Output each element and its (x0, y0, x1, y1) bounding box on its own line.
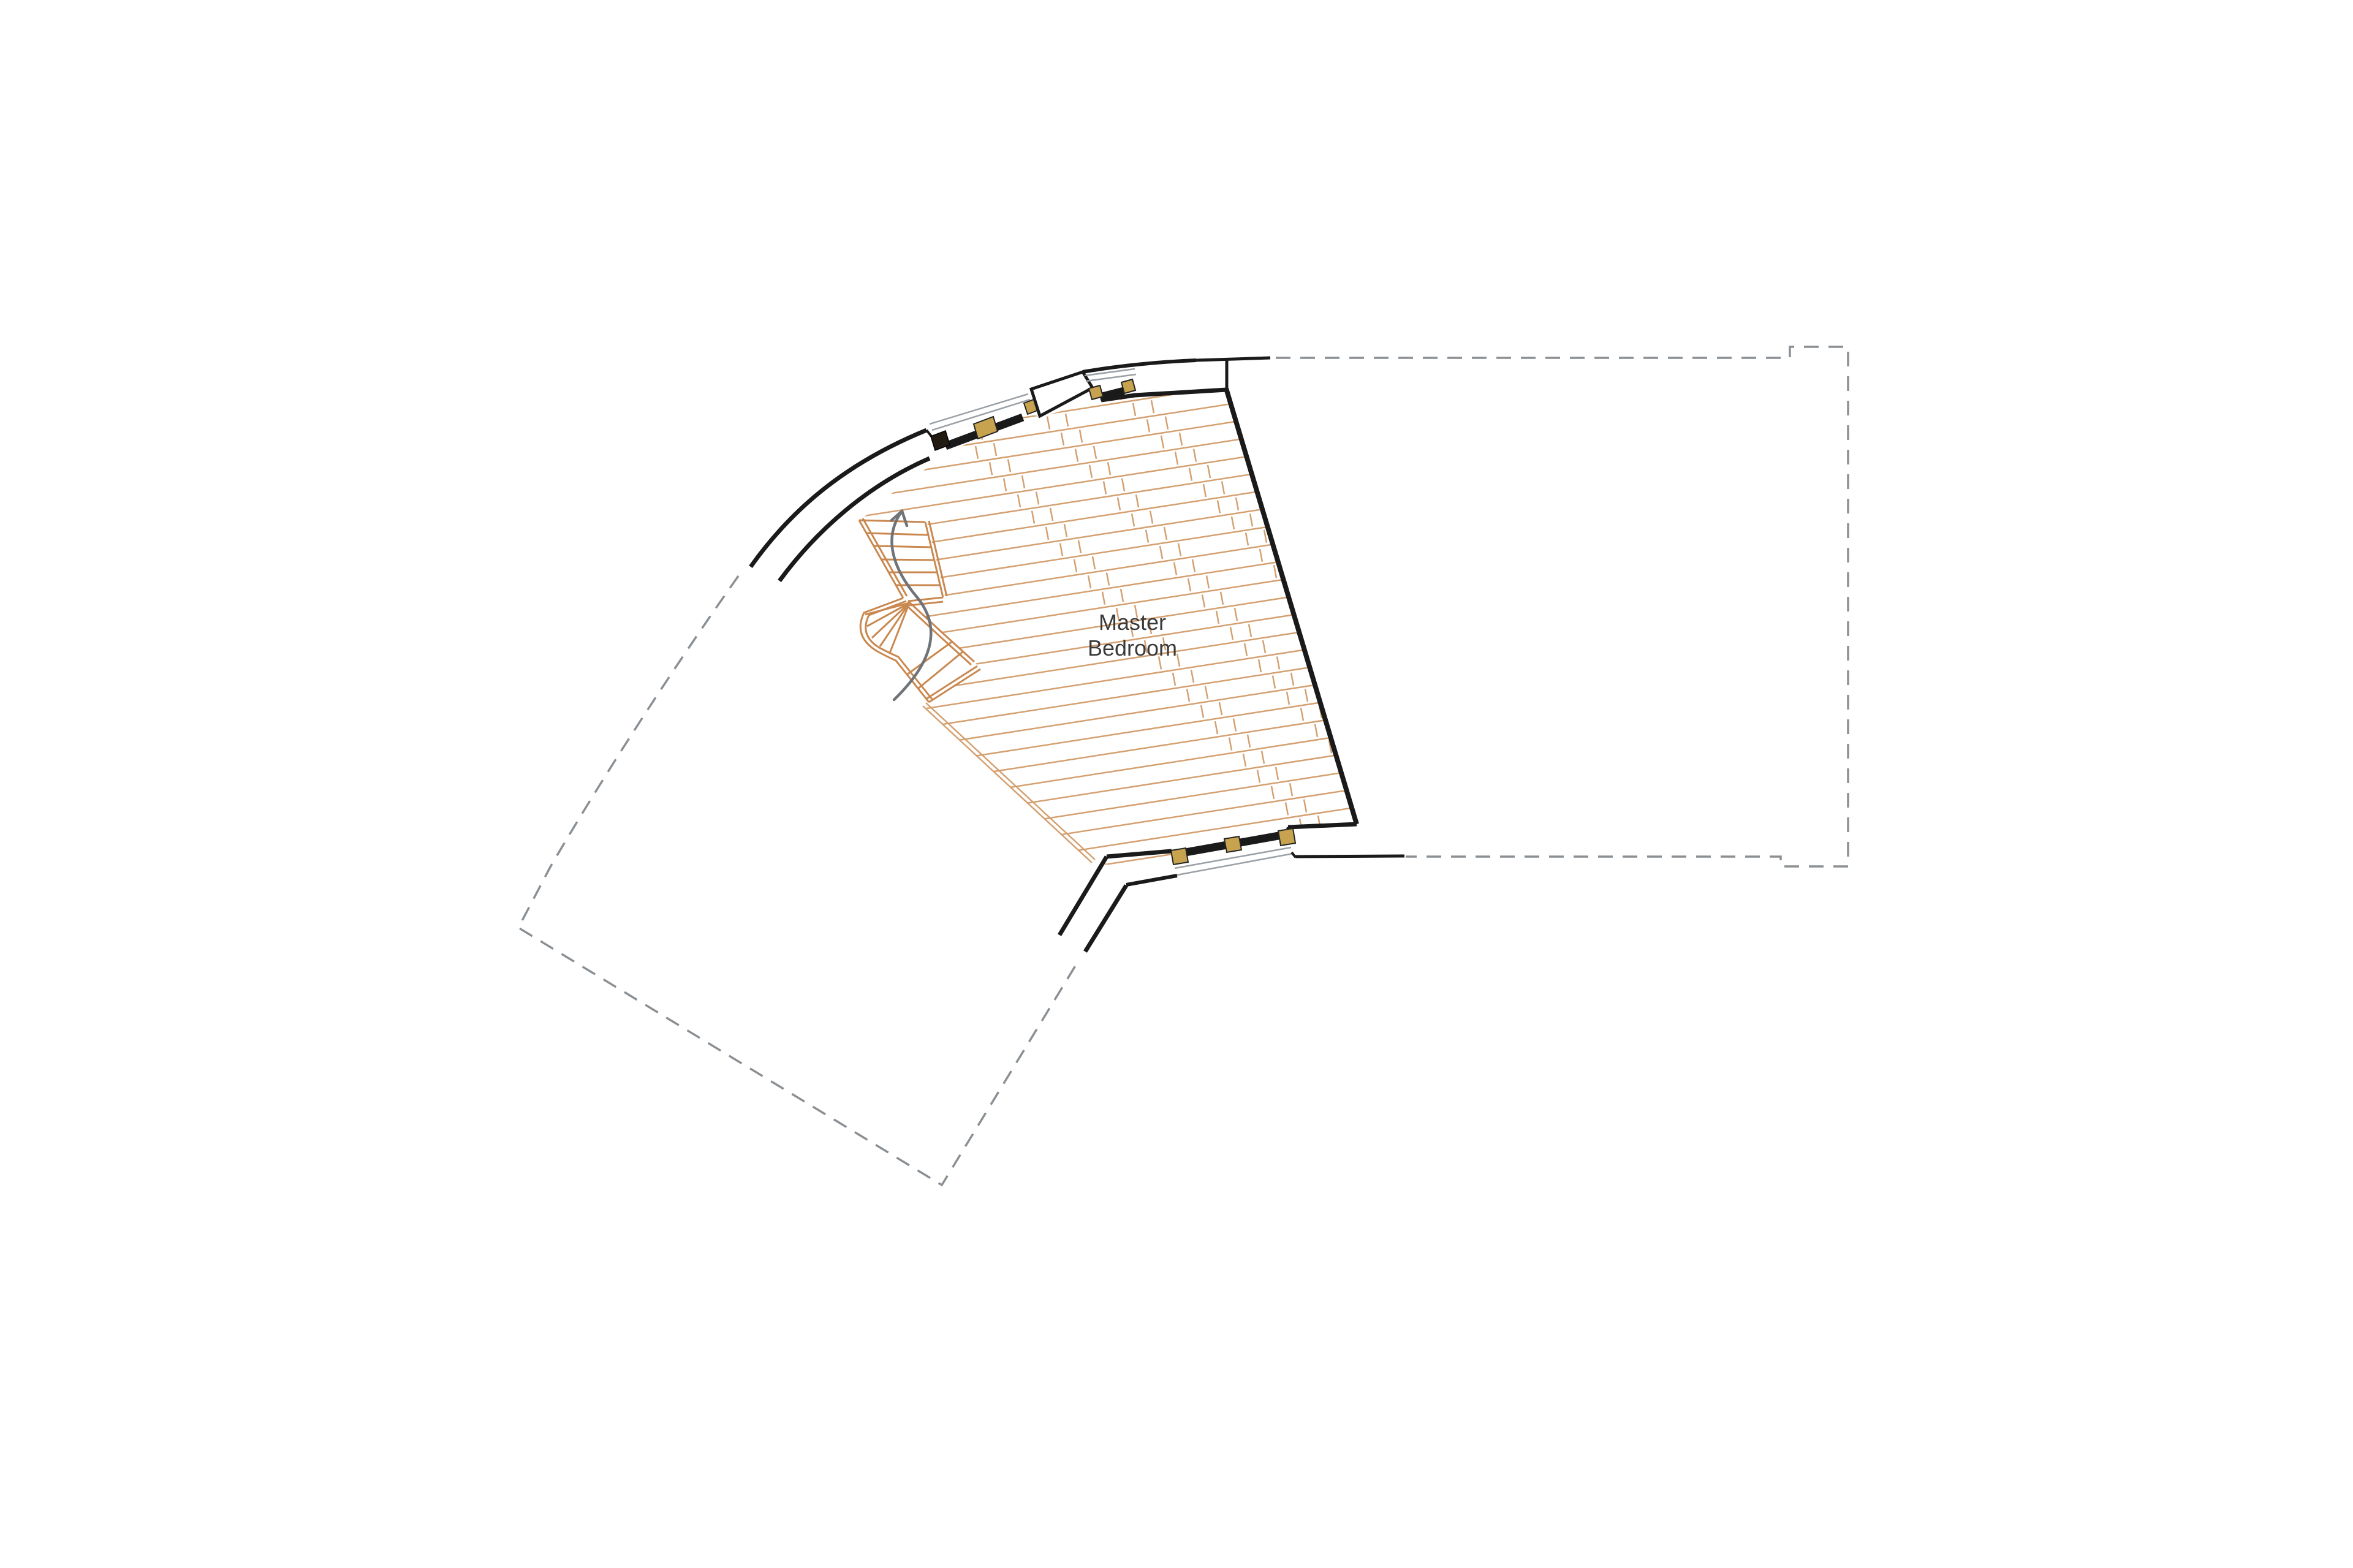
floor-plank-joint (1189, 468, 1192, 481)
floor-hatch-line (846, 692, 1385, 776)
floor-plank-joint (1419, 708, 1422, 721)
floor-plank-joint (990, 462, 992, 475)
floor-plank-joint (1219, 702, 1222, 715)
floor-plank-joint (1180, 433, 1182, 445)
roof-outline-right-dashed (1276, 347, 1848, 866)
floor-plank-joint (1074, 559, 1077, 572)
floor-plank-joint (1490, 789, 1492, 802)
floor-hatch-line (846, 490, 1385, 574)
floor-plank-joint (933, 397, 936, 410)
room-label-line2: Bedroom (1088, 635, 1177, 661)
floor-plank-joint (1216, 611, 1219, 624)
floor-plank-joint (1236, 498, 1238, 510)
floor-plank-joint (1178, 543, 1181, 556)
floor-hatch-line (846, 839, 1385, 923)
floor-plank-joint (1160, 546, 1162, 559)
floor-plank-joint (1387, 695, 1389, 708)
floor-plank-joint (1404, 802, 1406, 815)
floor-plank-joint (1194, 449, 1196, 462)
floor-plank-joint (1078, 540, 1081, 553)
floor-plank-joint (1133, 403, 1135, 416)
floor-hatch-line (846, 398, 1385, 482)
floor-plank-joint (1107, 573, 1109, 586)
floor-plank-joint (1064, 524, 1067, 537)
floor-plank-joint (1165, 417, 1168, 430)
floor-plank-joint (1232, 517, 1234, 529)
floor-plank-joint (1333, 721, 1336, 734)
floor-plank-joint (1161, 436, 1164, 449)
floor-plank-joint (1215, 721, 1218, 734)
floor-hatch-line (846, 527, 1385, 610)
floor-plank-joint (1230, 627, 1233, 640)
floor-hatch-line (846, 472, 1385, 555)
floor-plank-joint (1250, 513, 1252, 526)
floor-plank-joint (1201, 705, 1203, 718)
floor-plank-joint (1292, 562, 1295, 575)
window-mullion-block (1121, 379, 1135, 393)
floor-plank-joint (1104, 481, 1106, 494)
east-wall (1226, 388, 1357, 824)
floor-plank-joint (1036, 491, 1039, 504)
floor-plank-joint (1222, 481, 1224, 494)
floor-plank-joint (1192, 559, 1195, 572)
floor-plank-joint (1271, 786, 1274, 799)
floor-hatch-line (846, 766, 1385, 849)
floor-plank-joint (1188, 578, 1191, 591)
room-label: Master Bedroom (1088, 610, 1177, 661)
floor-plank-joint (1357, 773, 1360, 786)
floor-plank-joint (1429, 743, 1431, 756)
floor-plank-joint (1150, 511, 1153, 524)
floor-plank-joint (1088, 575, 1091, 588)
floor-plank-joint (1461, 757, 1464, 770)
floor-plank-joint (1447, 740, 1450, 753)
floor-plank-joint (1019, 384, 1021, 397)
floor-plank-joint (1320, 594, 1323, 607)
floor-plank-joint (1400, 821, 1402, 834)
floor-plank-joint (1147, 419, 1150, 432)
floor-plank-joint (1306, 578, 1309, 591)
floor-plank-joint (1089, 465, 1092, 478)
deck-outline-lower-left-dashed (518, 576, 1078, 1185)
floor-plank-joint (1305, 689, 1308, 702)
floor-plank-joint (1233, 718, 1236, 731)
window-mullion-block (1224, 836, 1241, 852)
floor-plank-joint (1177, 654, 1180, 667)
floor-plank-joint (1132, 513, 1134, 526)
floor-plank-joint (1257, 770, 1260, 782)
floor-plank-joint (1314, 835, 1316, 847)
floor-plank-joint (1343, 757, 1346, 770)
room-label-line1: Master (1099, 610, 1166, 635)
floor-hatch-line (846, 821, 1385, 904)
floor-plank-joint (1151, 400, 1154, 413)
floor-plank-joint (1260, 549, 1262, 562)
window-mullion-block (1089, 385, 1103, 400)
floor-plank-joint (1022, 475, 1025, 488)
floor-plank-joint (1066, 414, 1068, 426)
floor-plank-joint (1418, 819, 1420, 831)
floor-plank-joint (1302, 597, 1305, 610)
door-opening-jamb (1059, 857, 1107, 935)
floor-plank-joint (1004, 479, 1006, 491)
floor-plank-joint (1245, 643, 1247, 656)
floor-plank-joint (1246, 532, 1248, 545)
floor-plank-joint (1173, 673, 1175, 686)
floor-plank-joint (1332, 832, 1335, 845)
floor-plank-joint (1080, 430, 1082, 442)
door-opening-jamb (1085, 885, 1126, 952)
floor-plank-joint (1485, 808, 1488, 821)
floor-plank-joint (1229, 738, 1232, 751)
floor-plank-joint (976, 446, 978, 459)
floor-plank-joint (1316, 614, 1319, 627)
floor-plank-joint (1202, 594, 1205, 607)
floor-plank-joint (1504, 805, 1506, 818)
floor-plank-joint (1175, 452, 1178, 464)
floor-plank-joint (1476, 773, 1478, 786)
floor-plank-joint (1005, 368, 1007, 381)
floor-plank-joint (1091, 355, 1093, 368)
exterior-line-bottom-right (1295, 856, 1404, 857)
floor-plank-joint (1273, 676, 1275, 689)
floor-plank-joint (1290, 783, 1292, 796)
floor-plank-joint (1401, 711, 1403, 724)
floor-plank-joint (1471, 792, 1474, 805)
floor-plank-joint (1443, 759, 1446, 772)
floor-plank-joint (1415, 727, 1417, 740)
floor-plank-joint (994, 443, 996, 456)
floor-plank-joint (1094, 446, 1096, 459)
floor-hatch-line (846, 803, 1385, 886)
floor-plank-joint (952, 395, 954, 407)
floor-plank-joint (919, 381, 922, 394)
floor-plank-joint (1376, 770, 1378, 783)
floor-plank-joint (1218, 501, 1220, 513)
floor-plank-joint (1390, 786, 1392, 799)
wood-floor-hatch (846, 306, 1506, 923)
floor-plank-joint (1122, 479, 1124, 491)
floor-plank-joint (1243, 754, 1246, 767)
floor-plank-joint (1207, 575, 1209, 588)
floor-plank-joint (1344, 646, 1347, 659)
floor-plank-joint (1287, 692, 1289, 705)
floor-plank-joint (1061, 433, 1064, 445)
floor-plank-joint (1046, 527, 1048, 540)
floor-plank-joint (1191, 670, 1194, 683)
floor-plank-joint (1291, 673, 1294, 686)
floor-plank-joint (938, 378, 940, 391)
floor-plank-joint (1008, 460, 1010, 472)
floor-plank-joint (1301, 708, 1303, 721)
floor-plank-joint (1304, 800, 1306, 812)
floor-plank-joint (1391, 676, 1393, 689)
floor-plank-joint (1262, 751, 1264, 763)
floor-plank-joint (1286, 802, 1288, 815)
floor-plank-joint (1205, 686, 1208, 699)
floor-plank-joint (1385, 805, 1388, 818)
floor-plank-joint (1121, 589, 1123, 602)
floor-plank-joint (1174, 562, 1176, 575)
floor-plank-joint (1093, 556, 1095, 569)
floor-plank-joint (1118, 498, 1120, 510)
floor-plank-joint (1203, 484, 1206, 497)
floor-hatch-line (846, 656, 1385, 739)
floor-plank-joint (1050, 508, 1053, 521)
floor-plank-joint (1235, 608, 1237, 621)
floor-plank-joint (1405, 692, 1408, 705)
floor-plank-joint (1363, 643, 1365, 656)
floor-plank-joint (1377, 659, 1379, 672)
floor-plank-joint (1221, 592, 1223, 605)
floor-plank-joint (1018, 494, 1020, 507)
floor-plank-joint (1349, 627, 1351, 640)
floor-plank-joint (1330, 630, 1333, 643)
wall-pier (1031, 372, 1093, 416)
floor-plank-joint (1259, 659, 1261, 672)
floor-hatch-line (846, 509, 1385, 592)
floor-plank-joint (1371, 789, 1374, 802)
floor-plank-joint (1023, 365, 1026, 378)
floor-plank-joint (1187, 689, 1189, 702)
floor-plank-joint (1277, 656, 1279, 669)
bottom-wall (1059, 824, 1357, 952)
floor-edge-line (923, 703, 1095, 863)
floor-plank-joint (1457, 776, 1460, 789)
floor-plank-joint (1358, 662, 1361, 675)
floor-plank-joint (1109, 352, 1112, 365)
floor-plank-joint (1047, 417, 1050, 430)
floor-plank-joint (1075, 449, 1078, 461)
floor-plank-joint (1248, 735, 1250, 748)
floor-hatch-line (846, 362, 1385, 445)
floor-plank-joint (1263, 640, 1265, 653)
floor-plank-joint (1276, 767, 1278, 780)
floor-plank-joint (1433, 724, 1436, 737)
window-mullion-block (974, 417, 998, 439)
floor-plank-joint (1208, 465, 1210, 478)
floor-plank-joint (1373, 678, 1375, 691)
floor-plank-joint (1102, 592, 1105, 605)
floor-plank-joint (1164, 527, 1167, 540)
floor-plank-joint (1136, 494, 1139, 507)
exterior-line-top-right (1196, 358, 1270, 360)
floor-plank-joint (1335, 611, 1337, 624)
floor-plan-canvas: Master Bedroom (0, 0, 2353, 1568)
floor-plank-joint (1264, 530, 1267, 543)
floor-plank-joint (1108, 462, 1110, 475)
floor-plank-joint (1315, 724, 1317, 737)
floor-hatch-line (846, 435, 1385, 518)
floor-plank-joint (1274, 565, 1276, 578)
floor-plank-joint (1249, 624, 1251, 637)
floor-hatch-line (846, 343, 1385, 426)
floor-plank-joint (1060, 543, 1063, 556)
floor-hatch-line (846, 748, 1385, 831)
curved-exterior-wall (751, 430, 934, 581)
floor-hatch-line (846, 711, 1385, 794)
floor-hatch-line (846, 674, 1385, 757)
floor-plank-joint (1032, 510, 1034, 523)
floor-plank-joint (1347, 738, 1350, 751)
floor-plank-joint (1362, 754, 1364, 767)
floor-plank-joint (1146, 530, 1148, 543)
window-mullion-block (1171, 848, 1188, 865)
window-mullion-block (1278, 828, 1295, 846)
